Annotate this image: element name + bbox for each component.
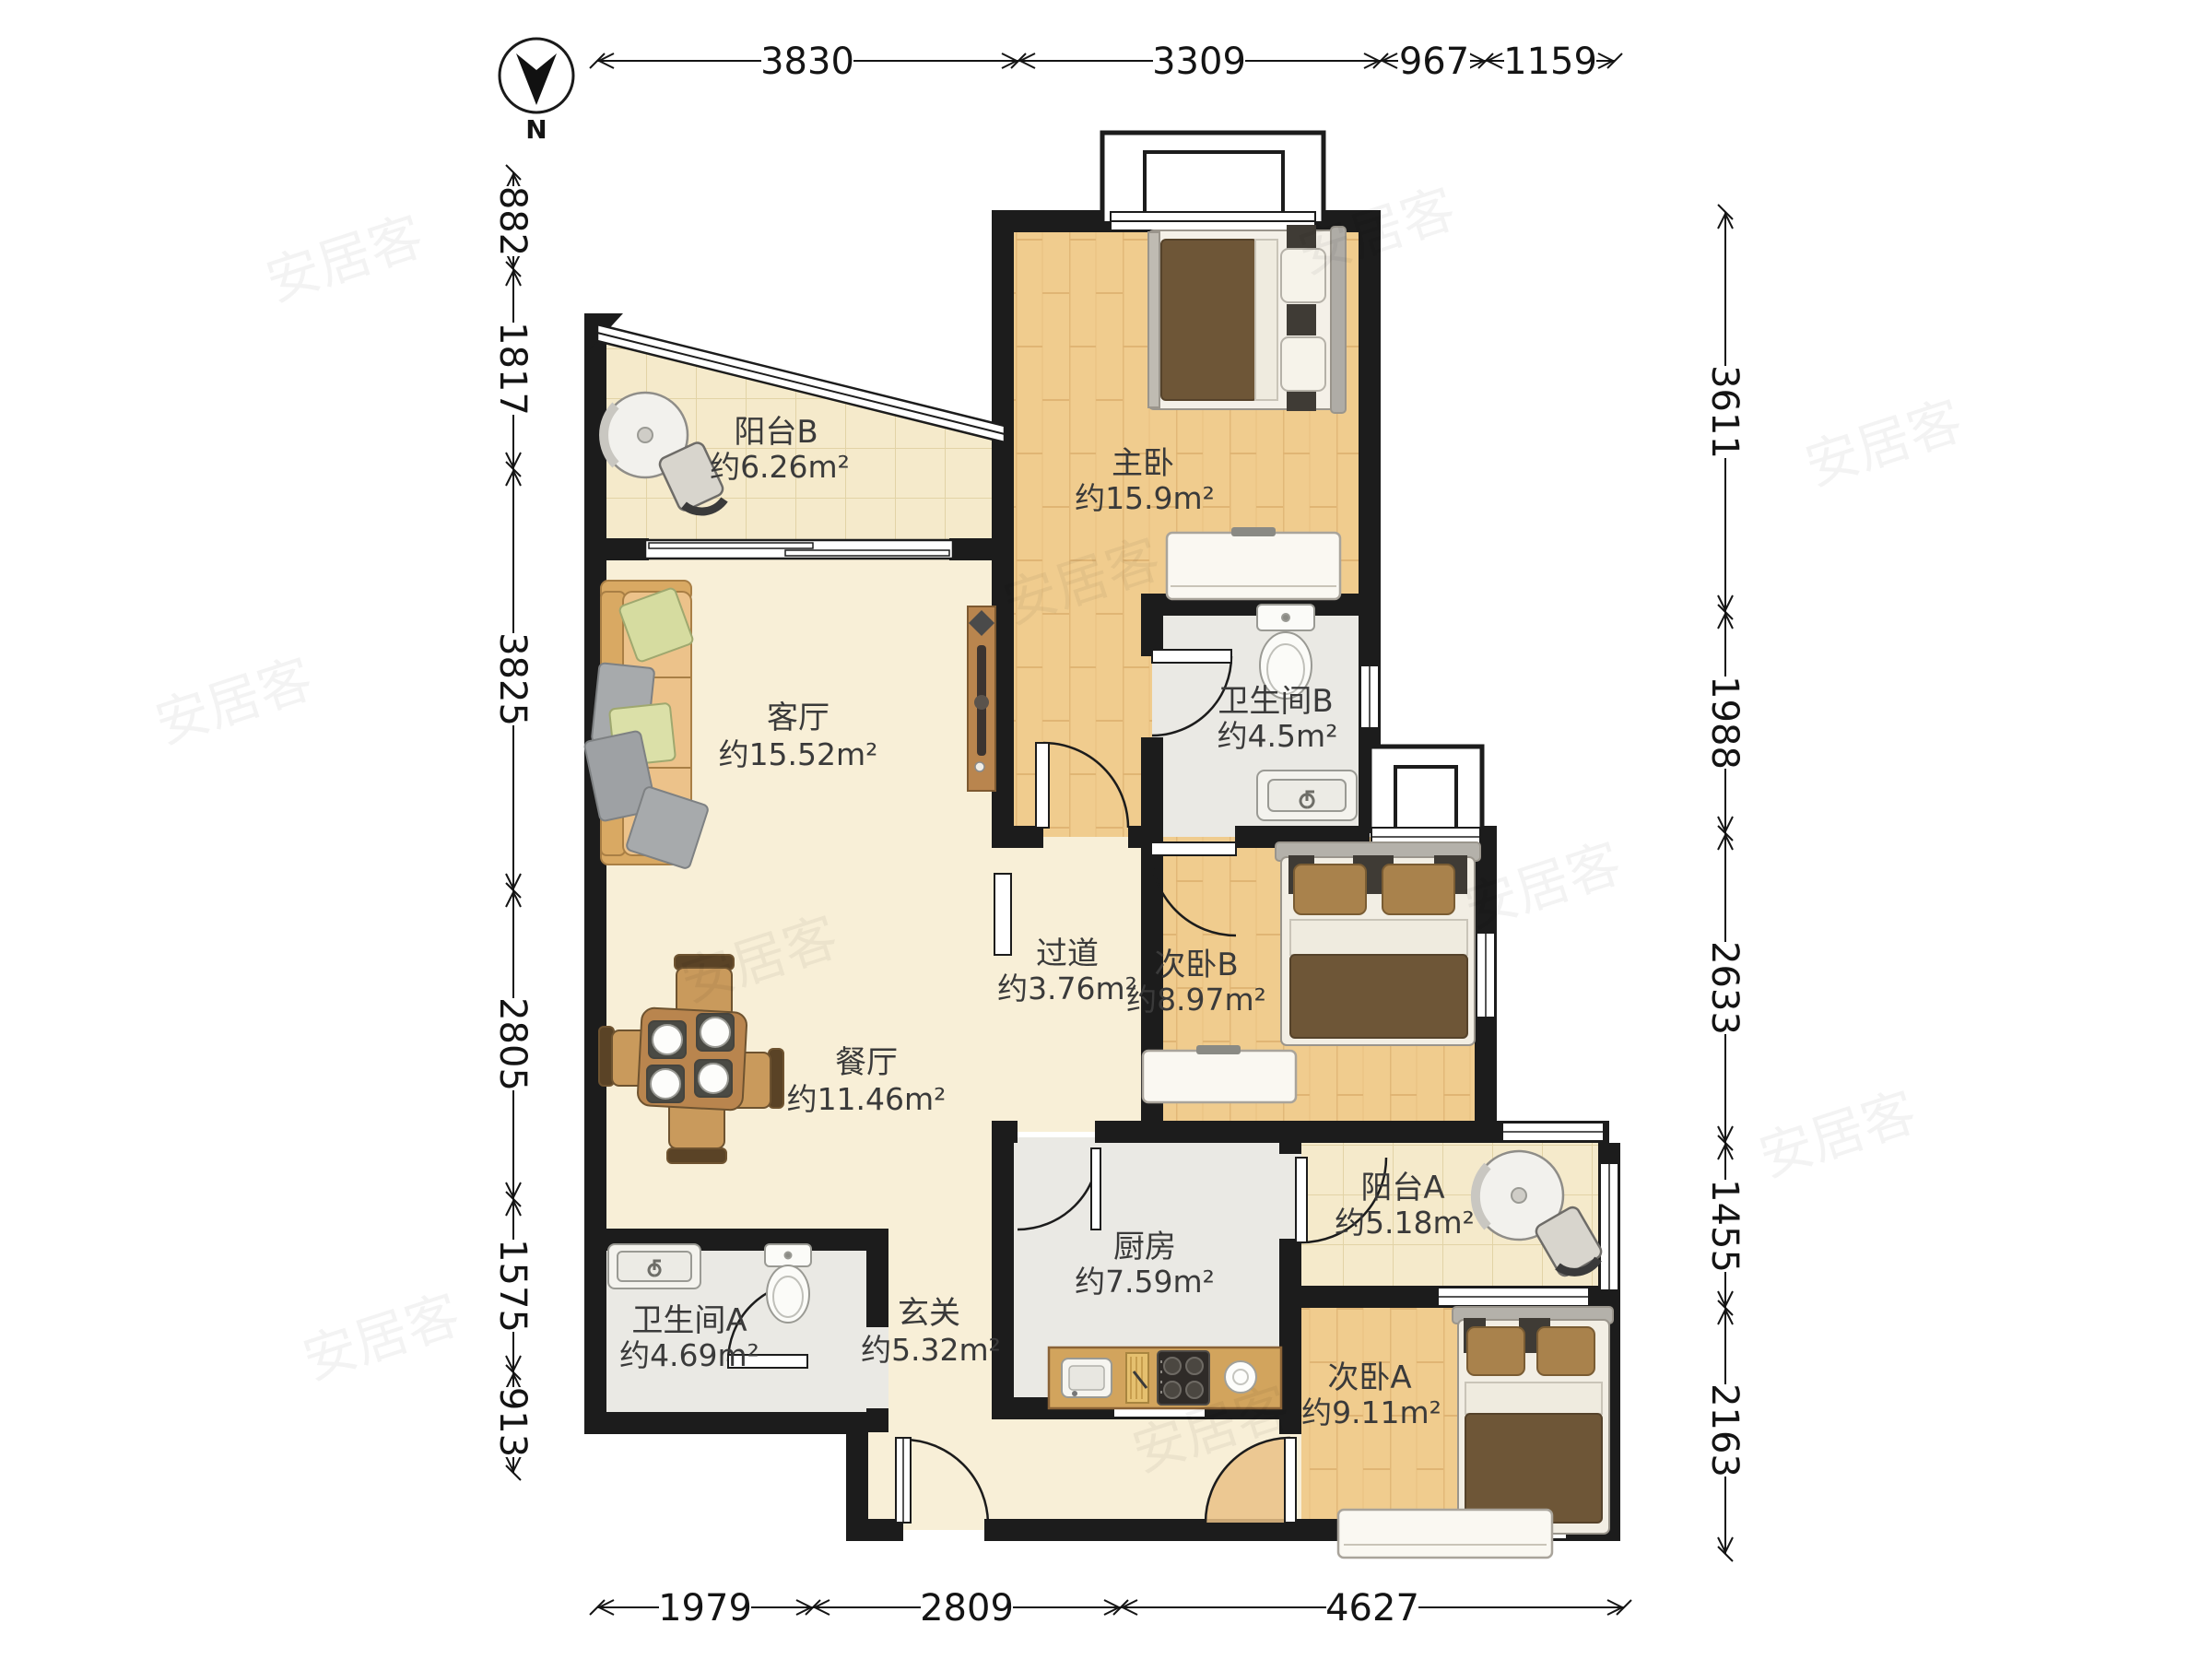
label-bedroom-a: 次卧A bbox=[1327, 1359, 1411, 1396]
dim-left-4: 1575 bbox=[491, 1239, 534, 1333]
dim-right-4: 2163 bbox=[1703, 1383, 1746, 1477]
hallway-niche bbox=[994, 874, 1011, 955]
compass-label: N bbox=[525, 114, 547, 145]
kitchen-sink bbox=[1062, 1359, 1112, 1397]
dim-left-5: 913 bbox=[491, 1387, 534, 1457]
label-bathroom-b: 卫生间B bbox=[1218, 683, 1333, 720]
dim-right-1: 1988 bbox=[1703, 676, 1746, 770]
master-dresser bbox=[1167, 527, 1340, 599]
dim-right-0: 3611 bbox=[1703, 365, 1746, 459]
area-master-bedroom: 约15.9m² bbox=[1075, 480, 1215, 516]
dim-left-1: 1817 bbox=[491, 322, 534, 416]
label-bedroom-b: 次卧B bbox=[1154, 947, 1238, 983]
bedroom-b-window bbox=[1477, 933, 1495, 1018]
dim-left-3: 2805 bbox=[491, 997, 534, 1091]
label-balcony-b: 阳台B bbox=[734, 414, 818, 451]
bedroom-b-bed bbox=[1276, 842, 1480, 1045]
floor-master-alcove bbox=[1003, 605, 1152, 837]
dim-left-2: 3825 bbox=[491, 632, 534, 726]
label-balcony-a: 阳台A bbox=[1360, 1170, 1444, 1206]
label-master-bedroom: 主卧 bbox=[1112, 445, 1174, 482]
area-living-room: 约15.52m² bbox=[719, 736, 878, 772]
tv-cabinet bbox=[968, 606, 995, 791]
label-entry: 玄关 bbox=[898, 1295, 960, 1332]
master-bay-window bbox=[1100, 131, 1325, 230]
dim-top-0: 3830 bbox=[760, 41, 854, 83]
area-entry: 约5.32m² bbox=[861, 1332, 1001, 1368]
label-kitchen: 厨房 bbox=[1113, 1229, 1176, 1265]
balcony-b-sliding-door bbox=[645, 540, 953, 559]
area-balcony-a: 约5.18m² bbox=[1335, 1205, 1475, 1241]
dim-top-2: 967 bbox=[1399, 41, 1469, 83]
dim-right-3: 1455 bbox=[1703, 1179, 1746, 1273]
bedroom-b-bay-window bbox=[1368, 745, 1484, 846]
area-hallway: 约3.76m² bbox=[997, 971, 1137, 1006]
dim-top-3: 1159 bbox=[1503, 41, 1597, 83]
floor-plan-canvas: 阳台B 约6.26m² 主卧 约15.9m² 客厅 约15.52m² 卫生间B … bbox=[0, 0, 2212, 1659]
sink-b bbox=[1257, 771, 1357, 820]
bedroom-a-bed bbox=[1453, 1307, 1613, 1534]
area-bedroom-a: 约9.11m² bbox=[1301, 1394, 1441, 1430]
balcony-a-window-east bbox=[1600, 1163, 1618, 1290]
sink-a bbox=[608, 1244, 700, 1288]
cutting-board bbox=[1126, 1353, 1148, 1403]
area-bathroom-b: 约4.5m² bbox=[1218, 718, 1338, 754]
area-dining-room: 约11.46m² bbox=[787, 1081, 947, 1117]
sofa bbox=[584, 581, 710, 869]
dim-bottom-0: 1979 bbox=[658, 1587, 752, 1630]
stove bbox=[1158, 1351, 1209, 1405]
balcony-a-window-north bbox=[1502, 1123, 1604, 1141]
dim-left-0: 882 bbox=[491, 186, 534, 256]
label-living-room: 客厅 bbox=[767, 700, 829, 736]
bathroom-b-window bbox=[1360, 665, 1379, 728]
floor-plan-page: 阳台B 约6.26m² 主卧 约15.9m² 客厅 约15.52m² 卫生间B … bbox=[0, 0, 2212, 1659]
dim-bottom-2: 4627 bbox=[1325, 1587, 1419, 1630]
label-hallway: 过道 bbox=[1036, 935, 1099, 972]
dim-bottom-1: 2809 bbox=[920, 1587, 1014, 1630]
area-bedroom-b: 约8.97m² bbox=[1126, 982, 1266, 1018]
dim-right-2: 2633 bbox=[1703, 941, 1746, 1035]
bedroom-a-north-window bbox=[1438, 1288, 1589, 1306]
area-bathroom-a: 约4.69m² bbox=[619, 1337, 759, 1373]
toilet-a bbox=[765, 1244, 811, 1323]
label-dining-room: 餐厅 bbox=[835, 1044, 898, 1081]
bedroom-b-dresser bbox=[1143, 1045, 1296, 1102]
area-kitchen: 约7.59m² bbox=[1075, 1264, 1215, 1300]
dim-top-1: 3309 bbox=[1152, 41, 1246, 83]
area-balcony-b: 约6.26m² bbox=[710, 449, 850, 485]
bedroom-a-dresser bbox=[1338, 1510, 1552, 1558]
label-bathroom-a: 卫生间A bbox=[631, 1302, 747, 1339]
